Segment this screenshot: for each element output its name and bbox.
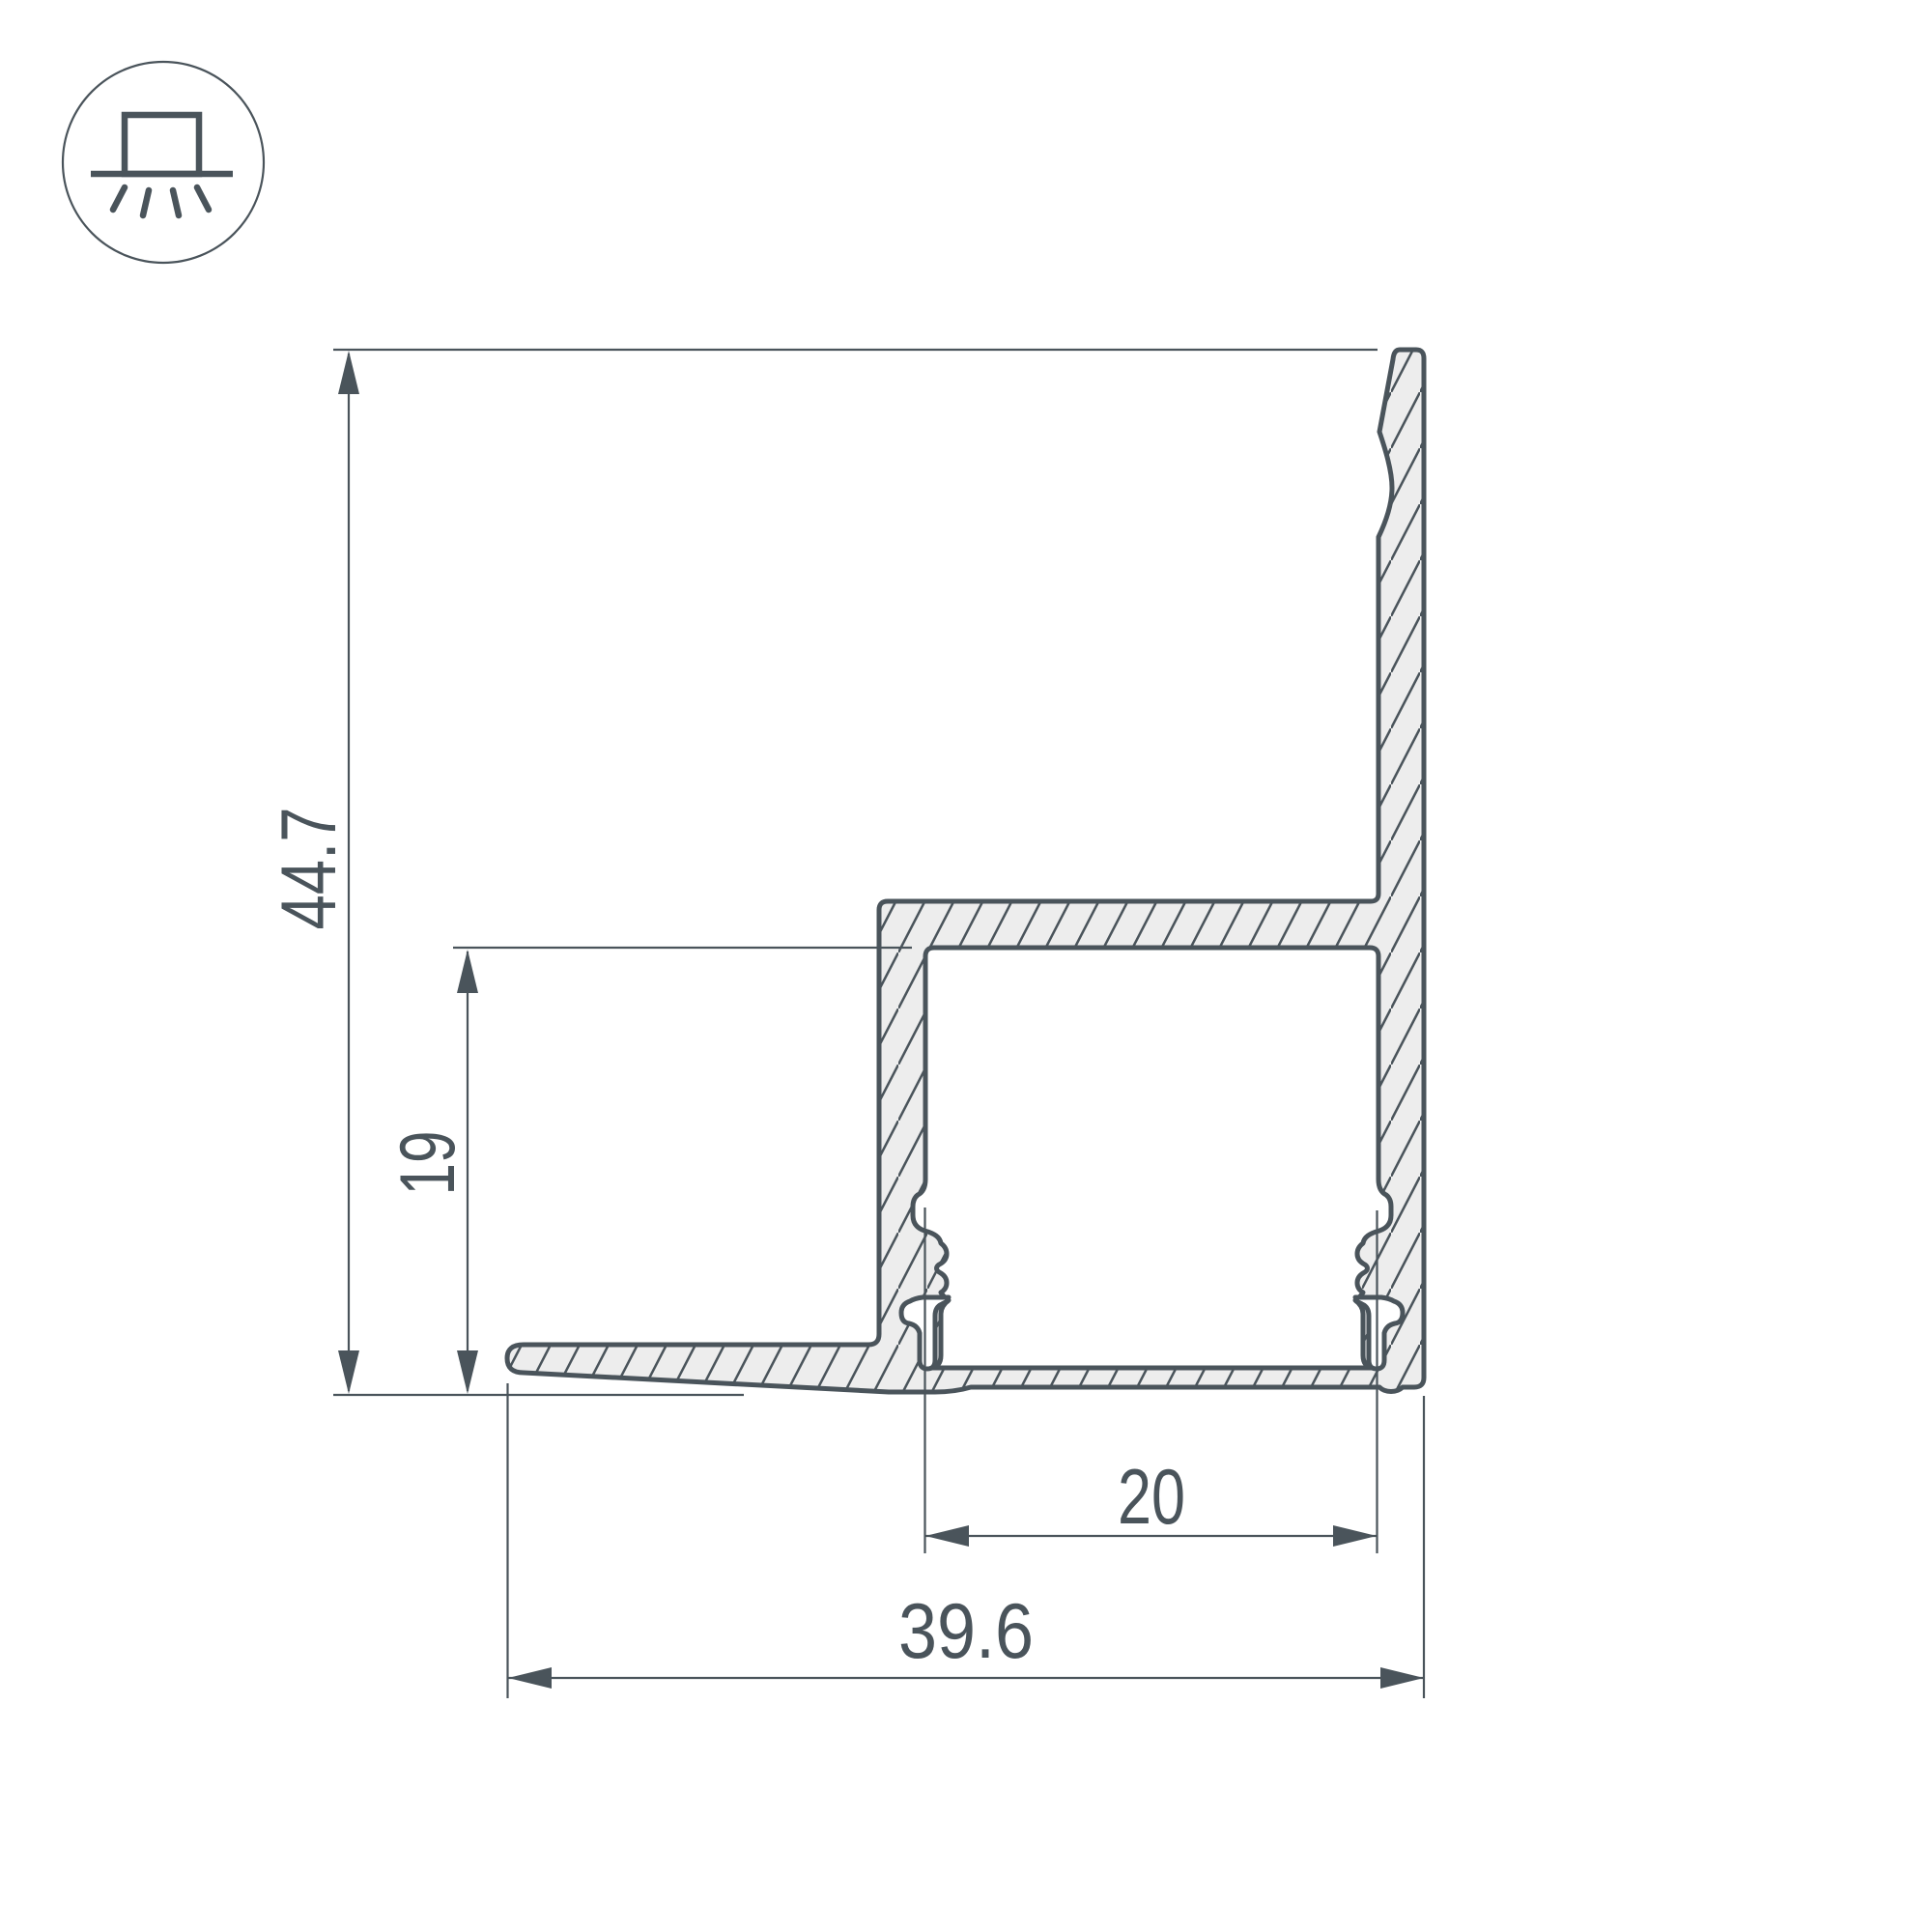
svg-text:19: 19	[384, 1131, 471, 1196]
svg-text:39.6: 39.6	[898, 1588, 1034, 1675]
svg-text:44.7: 44.7	[266, 808, 353, 930]
svg-text:20: 20	[1118, 1454, 1185, 1541]
